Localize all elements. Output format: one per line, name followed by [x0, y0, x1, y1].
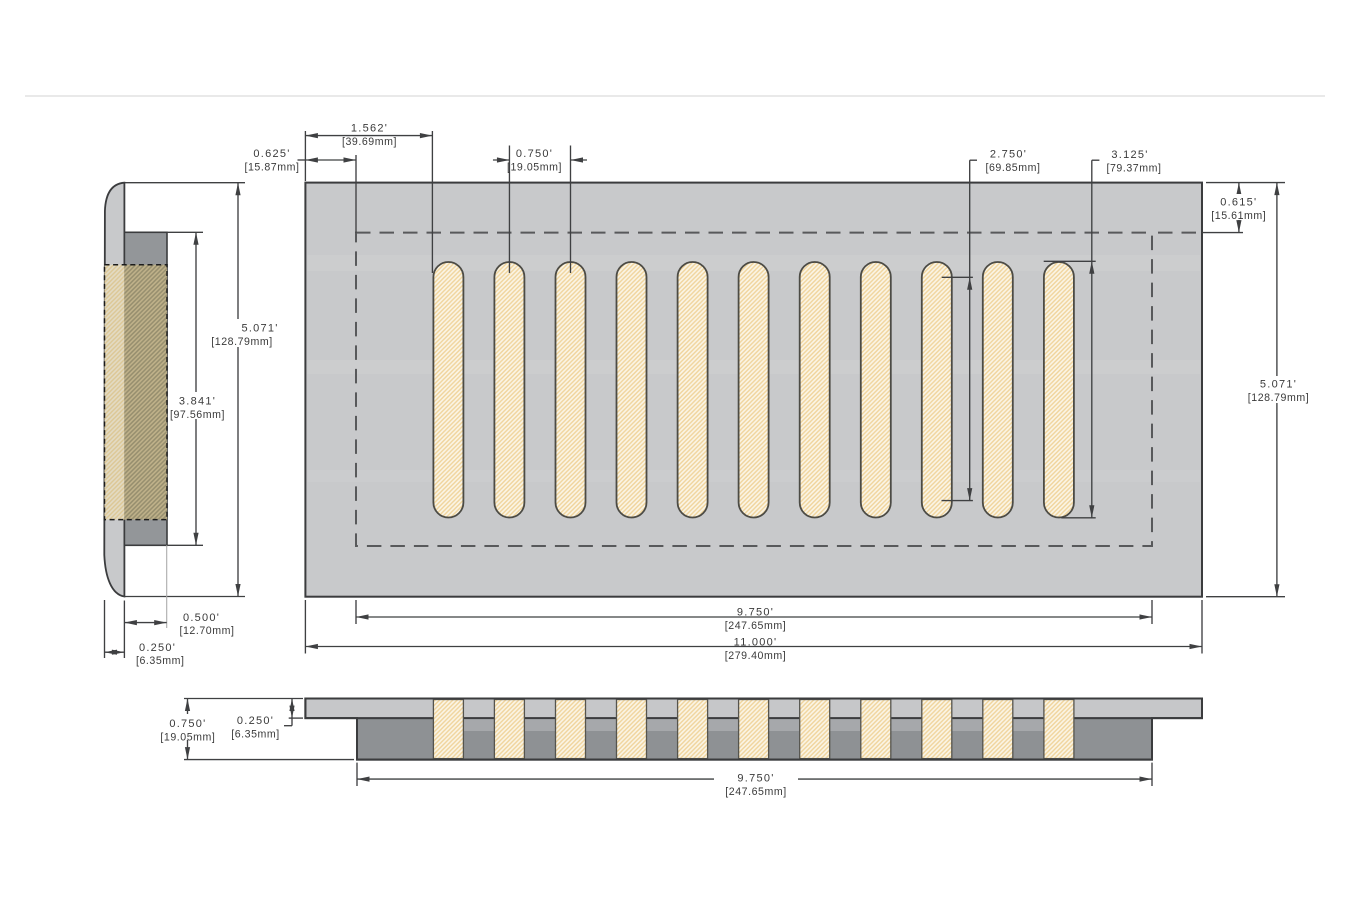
svg-text:[19.05mm]: [19.05mm]	[507, 161, 562, 173]
svg-text:5.071': 5.071'	[242, 323, 279, 335]
svg-text:[69.85mm]: [69.85mm]	[986, 162, 1041, 174]
svg-text:9.750': 9.750'	[737, 773, 774, 785]
svg-text:[247.65mm]: [247.65mm]	[725, 620, 786, 632]
svg-text:[247.65mm]: [247.65mm]	[725, 786, 786, 798]
svg-text:5.071': 5.071'	[1260, 379, 1297, 391]
svg-text:[128.79mm]: [128.79mm]	[211, 336, 272, 348]
svg-text:3.841': 3.841'	[179, 396, 216, 408]
svg-text:[6.35mm]: [6.35mm]	[136, 655, 185, 667]
svg-text:[128.79mm]: [128.79mm]	[1248, 392, 1309, 404]
svg-text:[19.05mm]: [19.05mm]	[160, 731, 215, 743]
svg-text:11.000': 11.000'	[734, 637, 778, 649]
svg-text:2.750': 2.750'	[990, 149, 1027, 161]
svg-text:[6.35mm]: [6.35mm]	[231, 728, 280, 740]
svg-text:0.250': 0.250'	[237, 715, 274, 727]
svg-text:0.750': 0.750'	[169, 718, 206, 730]
svg-text:[15.61mm]: [15.61mm]	[1211, 210, 1266, 222]
svg-text:[15.87mm]: [15.87mm]	[245, 161, 300, 173]
svg-text:[97.56mm]: [97.56mm]	[170, 409, 225, 421]
svg-text:1.562': 1.562'	[351, 123, 388, 135]
svg-text:0.750': 0.750'	[516, 148, 553, 160]
svg-text:9.750': 9.750'	[737, 607, 774, 619]
svg-text:[279.40mm]: [279.40mm]	[725, 650, 786, 662]
svg-text:[39.69mm]: [39.69mm]	[342, 136, 397, 148]
svg-text:0.615': 0.615'	[1220, 197, 1257, 209]
svg-text:0.625': 0.625'	[253, 148, 290, 160]
svg-text:[79.37mm]: [79.37mm]	[1107, 162, 1162, 174]
svg-text:0.500': 0.500'	[183, 612, 220, 624]
svg-text:[12.70mm]: [12.70mm]	[180, 625, 235, 637]
svg-text:3.125': 3.125'	[1111, 149, 1148, 161]
svg-text:0.250': 0.250'	[139, 642, 176, 654]
